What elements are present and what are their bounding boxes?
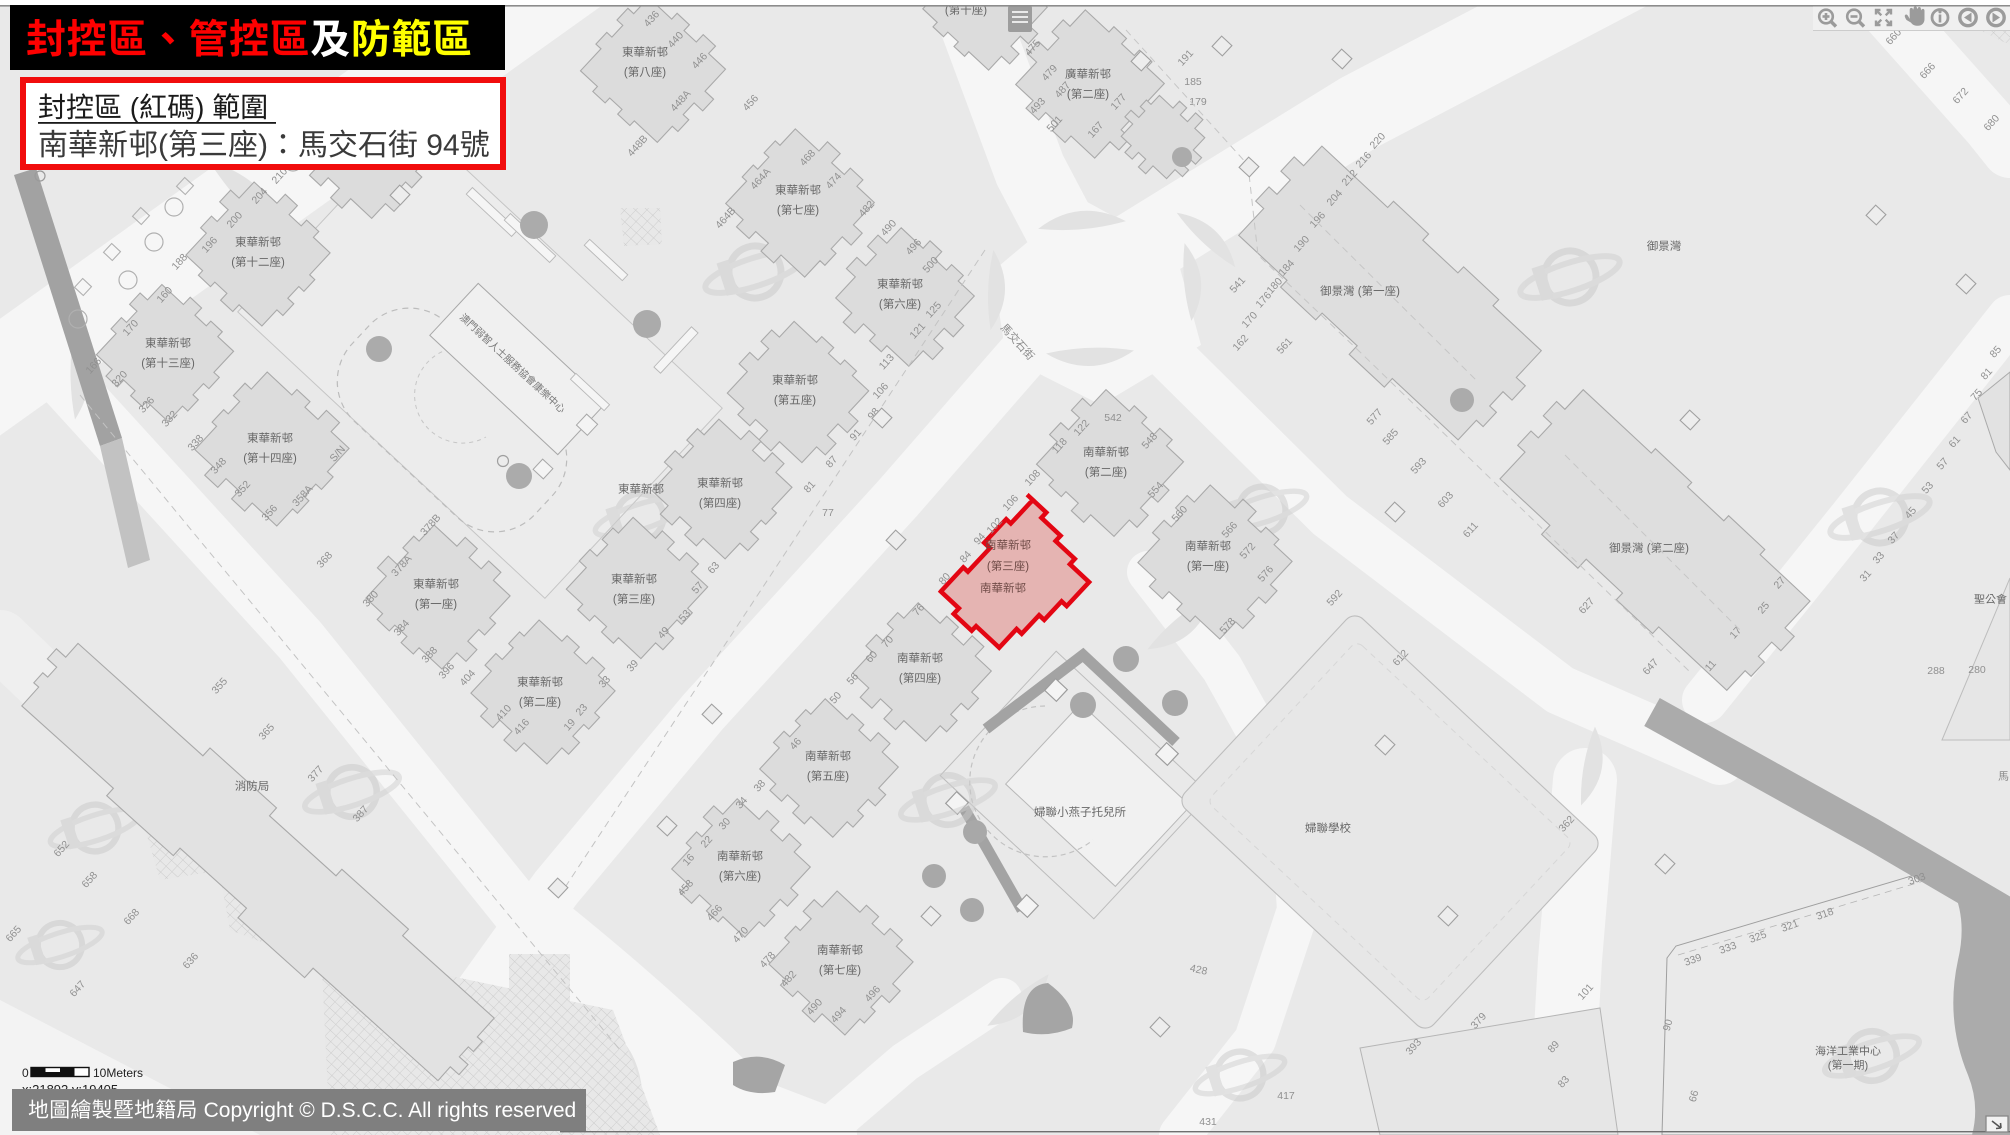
svg-text:431: 431 <box>1199 1116 1217 1128</box>
svg-text:(: ( <box>819 965 823 977</box>
svg-text:): ) <box>983 5 987 17</box>
svg-text:(: ( <box>699 498 703 510</box>
svg-text:(: ( <box>777 205 781 217</box>
svg-text:(: ( <box>987 561 991 573</box>
svg-text:): ) <box>1123 467 1127 479</box>
svg-text:Copyright © D.S.C.C. All right: Copyright © D.S.C.C. All rights reserved <box>204 1099 577 1122</box>
svg-text:(: ( <box>1187 561 1191 573</box>
svg-text:185: 185 <box>1184 76 1202 88</box>
svg-text:(: ( <box>945 5 949 17</box>
svg-text:): ) <box>293 453 297 465</box>
svg-text:): ) <box>651 594 655 606</box>
svg-text:): ) <box>453 599 457 611</box>
svg-text:280: 280 <box>1968 664 1986 676</box>
svg-text:(: ( <box>807 771 811 783</box>
svg-text:): ) <box>937 673 941 685</box>
svg-text:): ) <box>1865 1060 1869 1072</box>
svg-text:): ) <box>757 871 761 883</box>
svg-text:542: 542 <box>1104 412 1122 424</box>
svg-text:): ) <box>917 299 921 311</box>
svg-text:(: ( <box>879 299 883 311</box>
svg-text:(: ( <box>243 453 247 465</box>
svg-text:(: ( <box>1828 1060 1832 1072</box>
svg-text:): ) <box>195 92 204 123</box>
svg-text:(: ( <box>624 67 628 79</box>
svg-text:): ) <box>1225 561 1229 573</box>
svg-text:(: ( <box>899 673 903 685</box>
svg-text:): ) <box>815 205 819 217</box>
svg-text:(: ( <box>519 697 523 709</box>
svg-text:(: ( <box>613 594 617 606</box>
svg-text:(: ( <box>1647 543 1651 555</box>
svg-text:(: ( <box>1085 467 1089 479</box>
svg-text:(: ( <box>141 358 145 370</box>
svg-text:179: 179 <box>1189 96 1207 108</box>
svg-text:): ) <box>281 257 285 269</box>
svg-text:): ) <box>1396 286 1400 298</box>
svg-text:): ) <box>1105 89 1109 101</box>
svg-text:288: 288 <box>1927 665 1945 677</box>
svg-text:(: ( <box>719 871 723 883</box>
svg-text:(: ( <box>1358 286 1362 298</box>
svg-text:(: ( <box>774 395 778 407</box>
svg-text:): ) <box>812 395 816 407</box>
svg-text:): ) <box>1025 561 1029 573</box>
svg-text:10Meters: 10Meters <box>93 1066 143 1080</box>
svg-text:): ) <box>1685 543 1689 555</box>
svg-text:): ) <box>662 67 666 79</box>
svg-text:0: 0 <box>22 1066 29 1080</box>
svg-text:(: ( <box>415 599 419 611</box>
svg-text:77: 77 <box>822 507 834 519</box>
svg-text:): ) <box>191 358 195 370</box>
svg-text:): ) <box>557 697 561 709</box>
svg-text:): ) <box>258 129 268 162</box>
svg-text:): ) <box>857 965 861 977</box>
svg-text:417: 417 <box>1277 1090 1295 1102</box>
svg-text:): ) <box>845 771 849 783</box>
svg-text:(: ( <box>231 257 235 269</box>
svg-text:94: 94 <box>426 129 459 162</box>
svg-text:(: ( <box>130 92 140 123</box>
svg-text:): ) <box>737 498 741 510</box>
svg-text:(: ( <box>158 129 168 162</box>
